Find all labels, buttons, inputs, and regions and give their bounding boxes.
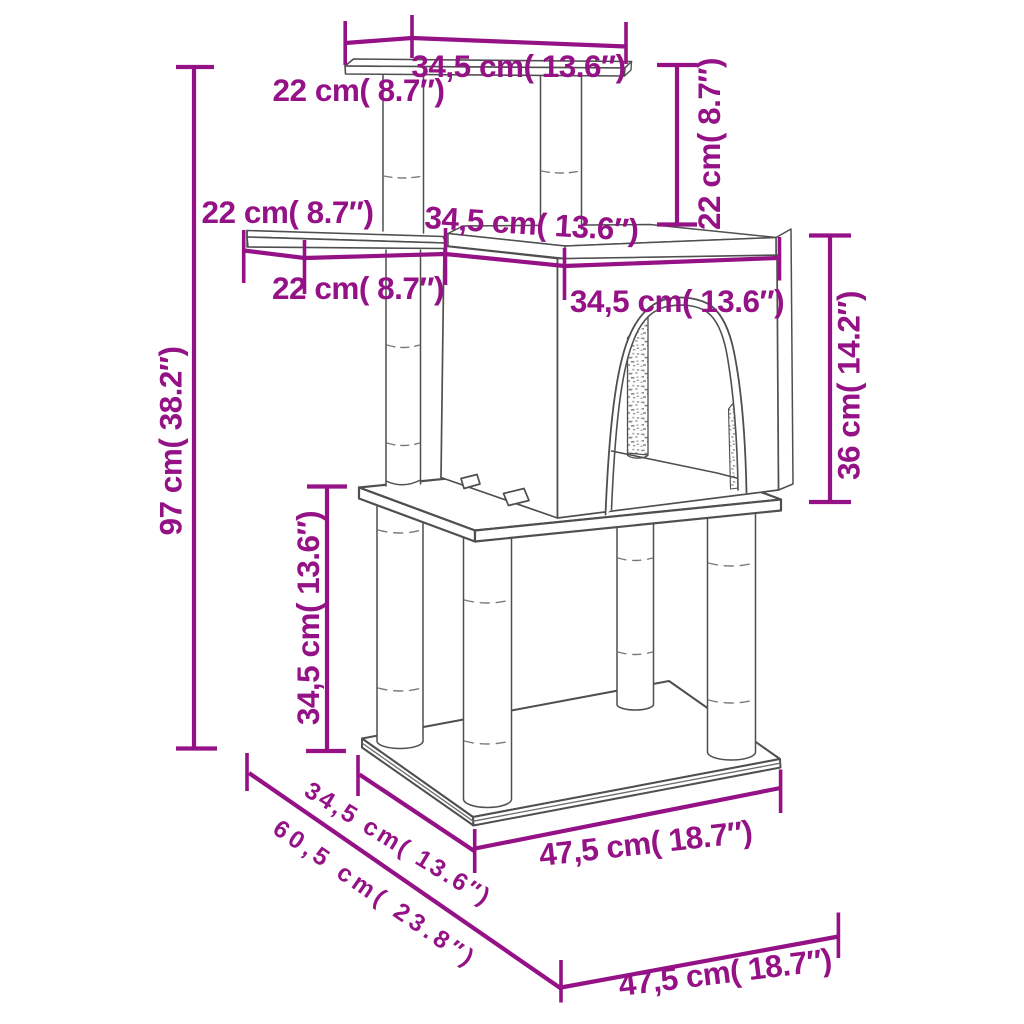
svg-text:36 cm( 14.2″): 36 cm( 14.2″) — [831, 291, 867, 480]
svg-text:22 cm( 8.7″): 22 cm( 8.7″) — [273, 72, 445, 108]
svg-text:22 cm( 8.7″): 22 cm( 8.7″) — [202, 194, 374, 230]
svg-text:22 cm( 8.7″): 22 cm( 8.7″) — [691, 58, 727, 230]
svg-text:34,5 cm( 13.6″): 34,5 cm( 13.6″) — [290, 511, 326, 725]
svg-text:34,5 cm( 13.6″): 34,5 cm( 13.6″) — [570, 283, 784, 319]
svg-text:22 cm( 8.7″): 22 cm( 8.7″) — [272, 270, 444, 306]
svg-text:97 cm( 38.2″): 97 cm( 38.2″) — [153, 347, 189, 536]
